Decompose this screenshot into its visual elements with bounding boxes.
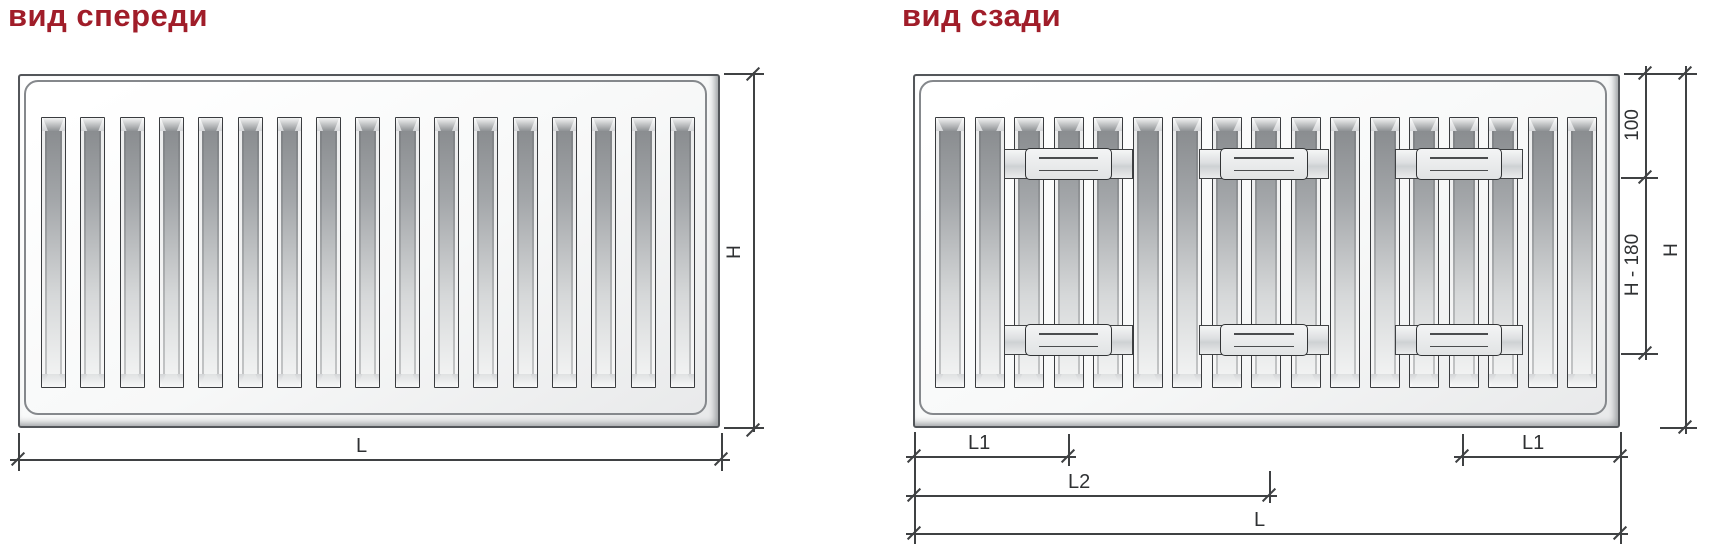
cap — [553, 118, 576, 131]
cap — [1568, 374, 1596, 387]
trap — [1450, 374, 1478, 387]
convector-fin — [935, 117, 965, 388]
cap — [317, 118, 340, 131]
trap — [1094, 374, 1122, 387]
trap — [592, 118, 615, 131]
chan — [632, 131, 655, 374]
cap — [121, 118, 144, 131]
plate — [1220, 148, 1308, 180]
convector-fin — [1133, 117, 1163, 388]
block — [1109, 325, 1133, 355]
dim-label-rear-height: H — [1652, 230, 1692, 270]
block — [1499, 149, 1523, 179]
trap — [1134, 374, 1162, 387]
plate — [1220, 324, 1308, 356]
view-title-front: вид спереди — [8, 0, 208, 34]
trap — [42, 374, 65, 387]
cap — [1055, 118, 1083, 131]
cap — [474, 118, 497, 131]
trap — [278, 374, 301, 387]
cap — [1410, 118, 1438, 131]
trap — [199, 374, 222, 387]
trap — [976, 118, 1004, 131]
dim-label-front-length: L — [356, 435, 367, 458]
mounting-bracket — [1199, 324, 1329, 356]
cap — [976, 374, 1004, 387]
convector-fin — [198, 117, 223, 388]
convector-fin — [591, 117, 616, 388]
convector-fin — [1330, 117, 1360, 388]
trap — [81, 374, 104, 387]
chan — [592, 131, 615, 374]
chan — [81, 131, 104, 374]
dimension-line — [906, 495, 1277, 497]
trap — [553, 374, 576, 387]
trap — [1529, 374, 1557, 387]
cap — [81, 374, 104, 387]
trap — [239, 118, 262, 131]
block — [1305, 149, 1329, 179]
cap — [356, 118, 379, 131]
dimension-line — [724, 73, 764, 75]
technical-drawing: вид спереди вид сзади H L — [0, 0, 1732, 544]
cap — [81, 118, 104, 131]
dimension-line — [721, 433, 723, 471]
cap — [1015, 374, 1043, 387]
trap — [239, 374, 262, 387]
trap — [1489, 118, 1517, 131]
plate — [1025, 148, 1112, 180]
convector-fin — [670, 117, 695, 388]
trap — [671, 118, 694, 131]
trap — [1568, 374, 1596, 387]
convector-fin — [238, 117, 263, 388]
cap — [1450, 118, 1478, 131]
cap — [435, 118, 458, 131]
trap — [1450, 118, 1478, 131]
cap — [317, 374, 340, 387]
dim-label-rear-l1-left: L1 — [968, 432, 990, 455]
chan — [1568, 131, 1596, 374]
mounting-bracket — [1004, 148, 1133, 180]
convector-fin — [159, 117, 184, 388]
cap — [1134, 374, 1162, 387]
trap — [592, 374, 615, 387]
chan — [396, 131, 419, 374]
cap — [1331, 374, 1359, 387]
chan — [278, 131, 301, 374]
trap — [1252, 374, 1280, 387]
cap — [1094, 374, 1122, 387]
dimension-line — [10, 459, 730, 461]
trap — [1410, 374, 1438, 387]
cap — [592, 374, 615, 387]
cap — [1371, 374, 1399, 387]
dimension-line — [1621, 177, 1658, 179]
convector-fin — [552, 117, 577, 388]
dim-label-rear-l1-right: L1 — [1522, 432, 1544, 455]
cap — [1134, 118, 1162, 131]
trap — [632, 374, 655, 387]
dim-label-rear-middle: H - 180 — [1613, 205, 1653, 325]
trap — [1489, 374, 1517, 387]
convector-fin — [277, 117, 302, 388]
radiator-panel-front — [18, 74, 720, 428]
cap — [1173, 118, 1201, 131]
trap — [976, 374, 1004, 387]
trap — [81, 118, 104, 131]
t — [1430, 157, 1488, 159]
cap — [1450, 374, 1478, 387]
trap — [435, 374, 458, 387]
convector-fin — [631, 117, 656, 388]
cap — [1094, 118, 1122, 131]
b — [1234, 170, 1294, 172]
trap — [160, 374, 183, 387]
convector-fin — [80, 117, 105, 388]
t — [1234, 333, 1294, 335]
plate — [1025, 324, 1112, 356]
dimension-line — [1621, 353, 1658, 355]
chan — [976, 131, 1004, 374]
dim-label-front-height: H — [715, 232, 755, 272]
view-title-rear: вид сзади — [902, 0, 1061, 34]
convector-fin — [120, 117, 145, 388]
block — [1499, 325, 1523, 355]
trap — [1015, 118, 1043, 131]
dim-label-rear-l2: L2 — [1068, 471, 1090, 494]
chan — [936, 131, 964, 374]
cap — [160, 374, 183, 387]
cap — [632, 118, 655, 131]
mounting-bracket — [1395, 324, 1523, 356]
mounting-bracket — [1395, 148, 1523, 180]
cap — [278, 374, 301, 387]
trap — [1055, 118, 1083, 131]
trap — [936, 118, 964, 131]
trap — [1331, 374, 1359, 387]
radiator-panel-rear — [913, 74, 1620, 428]
cap — [1331, 118, 1359, 131]
cap — [1410, 374, 1438, 387]
trap — [278, 118, 301, 131]
convector-fin — [975, 117, 1005, 388]
cap — [671, 374, 694, 387]
trap — [1055, 374, 1083, 387]
convector-fin — [355, 117, 380, 388]
dimension-line — [724, 427, 764, 429]
trap — [1410, 118, 1438, 131]
trap — [121, 118, 144, 131]
cap — [1292, 374, 1320, 387]
b — [1234, 346, 1294, 348]
dim-label-rear-top-offset: 100 — [1613, 95, 1653, 155]
chan — [514, 131, 537, 374]
mounting-bracket — [1004, 324, 1133, 356]
cap — [632, 374, 655, 387]
chan — [239, 131, 262, 374]
trap — [553, 118, 576, 131]
dim-label-rear-length: L — [1254, 509, 1265, 532]
mounting-bracket — [1199, 148, 1329, 180]
trap — [356, 118, 379, 131]
convector-fin — [1172, 117, 1202, 388]
trap — [1252, 118, 1280, 131]
cap — [42, 374, 65, 387]
plate — [1416, 148, 1502, 180]
cap — [239, 118, 262, 131]
trap — [1331, 118, 1359, 131]
convector-fin — [1567, 117, 1597, 388]
cap — [474, 374, 497, 387]
trap — [1213, 374, 1241, 387]
trap — [1213, 118, 1241, 131]
chan — [474, 131, 497, 374]
dimension-line — [1454, 456, 1628, 458]
b — [1039, 346, 1098, 348]
convector-fin — [434, 117, 459, 388]
b — [1430, 346, 1488, 348]
convector-fin — [316, 117, 341, 388]
chan — [160, 131, 183, 374]
chan — [1134, 131, 1162, 374]
trap — [1529, 118, 1557, 131]
b — [1039, 170, 1098, 172]
chan — [42, 131, 65, 374]
cap — [514, 374, 537, 387]
chan — [356, 131, 379, 374]
trap — [1134, 118, 1162, 131]
cap — [1213, 374, 1241, 387]
cap — [396, 118, 419, 131]
chan — [553, 131, 576, 374]
trap — [317, 118, 340, 131]
dimension-line — [1068, 434, 1070, 466]
block — [1109, 149, 1133, 179]
cap — [976, 118, 1004, 131]
trap — [474, 374, 497, 387]
trap — [1568, 118, 1596, 131]
cap — [278, 118, 301, 131]
cap — [592, 118, 615, 131]
dimension-line — [914, 432, 916, 544]
cap — [121, 374, 144, 387]
cap — [1292, 118, 1320, 131]
cap — [1371, 118, 1399, 131]
cap — [239, 374, 262, 387]
trap — [356, 374, 379, 387]
dimension-line — [1620, 432, 1622, 544]
trap — [199, 118, 222, 131]
chan — [317, 131, 340, 374]
cap — [1568, 118, 1596, 131]
trap — [474, 118, 497, 131]
chan — [199, 131, 222, 374]
cap — [1213, 118, 1241, 131]
trap — [160, 118, 183, 131]
cap — [160, 118, 183, 131]
cap — [42, 118, 65, 131]
cap — [199, 374, 222, 387]
cap — [435, 374, 458, 387]
dimension-line — [1660, 427, 1697, 429]
cap — [396, 374, 419, 387]
dimension-line — [906, 533, 1628, 535]
b — [1430, 170, 1488, 172]
convector-fin — [1528, 117, 1558, 388]
trap — [121, 374, 144, 387]
cap — [936, 118, 964, 131]
dimension-line — [906, 456, 1076, 458]
convector-fin — [473, 117, 498, 388]
trap — [936, 374, 964, 387]
t — [1039, 333, 1098, 335]
t — [1234, 157, 1294, 159]
trap — [632, 118, 655, 131]
trap — [1173, 374, 1201, 387]
dimension-line — [1462, 434, 1464, 466]
dimension-line — [1269, 471, 1271, 503]
trap — [514, 118, 537, 131]
trap — [396, 374, 419, 387]
chan — [435, 131, 458, 374]
cap — [1173, 374, 1201, 387]
trap — [1094, 118, 1122, 131]
trap — [1292, 118, 1320, 131]
cap — [671, 118, 694, 131]
trap — [1173, 118, 1201, 131]
trap — [435, 118, 458, 131]
cap — [1529, 374, 1557, 387]
trap — [514, 374, 537, 387]
trap — [1371, 118, 1399, 131]
cap — [356, 374, 379, 387]
chan — [1529, 131, 1557, 374]
t — [1430, 333, 1488, 335]
trap — [317, 374, 340, 387]
cap — [199, 118, 222, 131]
cap — [1529, 118, 1557, 131]
cap — [1055, 374, 1083, 387]
trap — [42, 118, 65, 131]
t — [1039, 157, 1098, 159]
trap — [1292, 374, 1320, 387]
convector-fin — [41, 117, 66, 388]
trap — [1015, 374, 1043, 387]
convector-fin — [395, 117, 420, 388]
cap — [1489, 118, 1517, 131]
cap — [936, 374, 964, 387]
plate — [1416, 324, 1502, 356]
dimension-line — [18, 433, 20, 471]
chan — [671, 131, 694, 374]
trap — [671, 374, 694, 387]
trap — [396, 118, 419, 131]
chan — [121, 131, 144, 374]
cap — [514, 118, 537, 131]
cap — [1252, 118, 1280, 131]
block — [1305, 325, 1329, 355]
cap — [553, 374, 576, 387]
cap — [1489, 374, 1517, 387]
cap — [1252, 374, 1280, 387]
trap — [1371, 374, 1399, 387]
convector-fin — [513, 117, 538, 388]
chan — [1331, 131, 1359, 374]
chan — [1173, 131, 1201, 374]
cap — [1015, 118, 1043, 131]
